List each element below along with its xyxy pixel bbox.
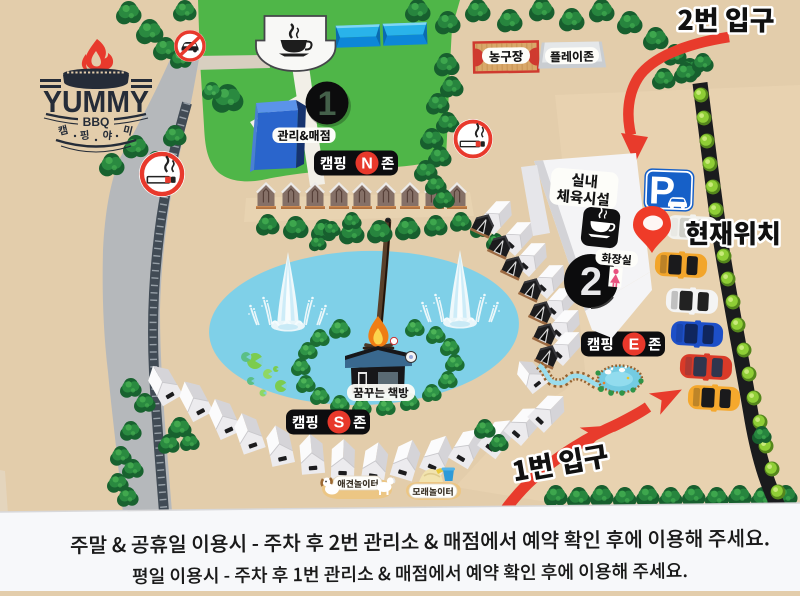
svg-text:E: E bbox=[629, 337, 640, 354]
svg-text:2: 2 bbox=[580, 260, 602, 304]
svg-text:S: S bbox=[334, 415, 345, 432]
svg-text:N: N bbox=[361, 156, 373, 173]
svg-text:1: 1 bbox=[318, 85, 337, 123]
svg-text:BBQ: BBQ bbox=[83, 115, 110, 129]
